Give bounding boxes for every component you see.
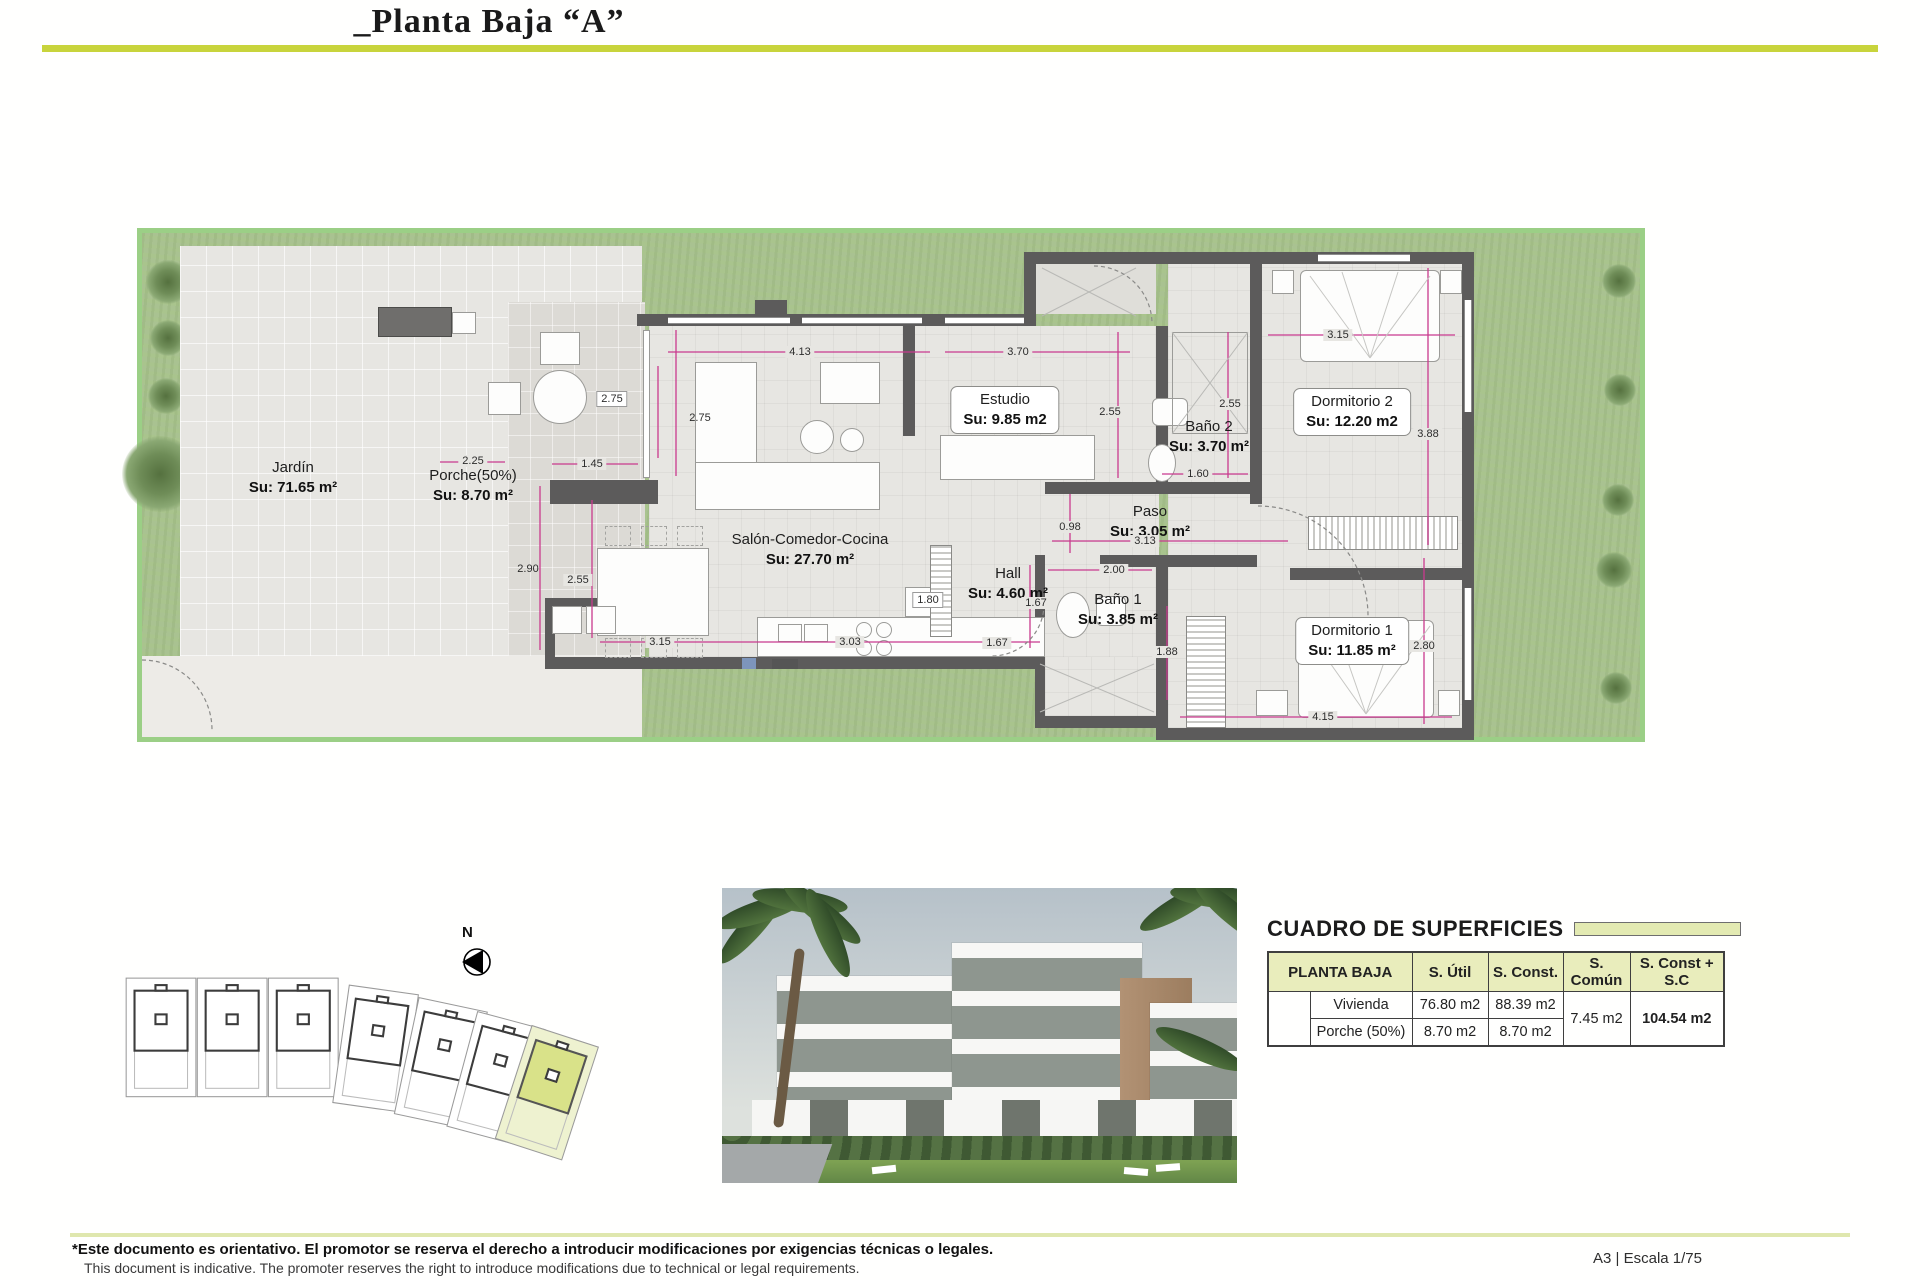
dimension: 2.00: [1099, 564, 1128, 576]
kitchen-sink: [804, 624, 828, 642]
utility-box: [772, 659, 798, 669]
room-label-porche: Porche(50%) Su: 8.70 m²: [429, 466, 517, 506]
cell-s-comun: 7.45 m2: [1563, 992, 1630, 1047]
sofa: [695, 462, 880, 510]
col-s-comun: S. Común: [1563, 952, 1630, 992]
window: [1464, 300, 1472, 412]
dimension: 3.13: [1130, 535, 1159, 547]
chair: [605, 638, 631, 658]
sheet-scale: A3 | Escala 1/75: [1593, 1250, 1702, 1267]
dimension: 1.80: [912, 592, 943, 608]
window: [802, 317, 922, 324]
disclaimer-es: *Este documento es orientativo. El promo…: [72, 1241, 993, 1258]
utility-box: [742, 658, 756, 669]
porch-table: [533, 370, 587, 424]
coffee-table: [800, 420, 834, 454]
laundry-unit: [552, 606, 582, 634]
bed: [1300, 270, 1440, 362]
page-title: _Planta Baja “A”: [289, 0, 689, 44]
footer-rule: [70, 1233, 1850, 1237]
table-header-row: PLANTA BAJA S. Útil S. Const. S. Común S…: [1268, 952, 1724, 992]
chair: [605, 526, 631, 546]
dimension: 2.90: [517, 563, 538, 575]
wall-partition: [1250, 264, 1262, 504]
dimension: 2.25: [458, 455, 487, 467]
nightstand: [1256, 690, 1288, 716]
tree-icon: [1600, 672, 1632, 704]
room-label-jardin: Jardín Su: 71.65 m²: [249, 458, 337, 498]
dimension: 3.88: [1413, 428, 1442, 440]
cell-total: 104.54 m2: [1630, 992, 1724, 1047]
dimension: 0.98: [1055, 521, 1084, 533]
wardrobe: [1308, 516, 1458, 550]
porch-chair: [540, 332, 580, 365]
room-label-bano1: Baño 1 Su: 3.85 m²: [1078, 590, 1158, 630]
surfaces-table-section: CUADRO DE SUPERFICIES PLANTA BAJA S. Úti…: [1267, 916, 1741, 1047]
wall-partition: [1035, 716, 1168, 728]
plan-sheet: _Planta Baja “A”: [0, 0, 1920, 1280]
room-label-dormitorio2: Dormitorio 2 Su: 12.20 m2: [1293, 388, 1411, 436]
dimension: 2.55: [1215, 398, 1244, 410]
tree-icon: [1596, 552, 1632, 588]
nightstand: [1438, 690, 1460, 716]
dimension: 2.75: [689, 412, 710, 424]
col-planta-baja: PLANTA BAJA: [1268, 952, 1412, 992]
kitchen-cabinet: [930, 545, 952, 637]
tree-icon: [1602, 264, 1636, 298]
col-s-const-sc: S. Const + S.C: [1630, 952, 1724, 992]
wall: [550, 480, 658, 504]
dimension: 2.55: [563, 574, 592, 586]
dimension: 3.15: [1323, 329, 1352, 341]
entry-landing: [1036, 264, 1156, 314]
nightstand: [1440, 270, 1462, 294]
window: [1318, 254, 1410, 262]
empty-cell: [1268, 992, 1310, 1047]
surfaces-table-title: CUADRO DE SUPERFICIES: [1267, 916, 1564, 942]
porch-bbq: [378, 307, 452, 337]
dimension: 4.15: [1308, 711, 1337, 723]
room-label-dormitorio1: Dormitorio 1 Su: 11.85 m²: [1295, 617, 1409, 665]
dimension: 3.03: [835, 636, 864, 648]
disclaimer-en: This document is indicative. The promote…: [84, 1260, 860, 1276]
cell-value: 88.39 m2: [1488, 992, 1563, 1019]
dimension: 4.13: [785, 346, 814, 358]
cell-value: 8.70 m2: [1412, 1019, 1488, 1047]
dimension: 3.15: [645, 636, 674, 648]
title-accent-bar: [1574, 922, 1741, 936]
kitchen-sink: [778, 624, 802, 642]
sliding-door: [643, 330, 650, 478]
col-s-const: S. Const.: [1488, 952, 1563, 992]
accent-rule: [42, 45, 1878, 52]
room-label-estudio: Estudio Su: 9.85 m2: [950, 386, 1059, 434]
chair: [677, 526, 703, 546]
dimension: 1.67: [1021, 597, 1050, 609]
wall-partition: [1290, 568, 1462, 580]
chair: [641, 526, 667, 546]
window: [1464, 588, 1472, 700]
dimension: 2.55: [1095, 406, 1124, 418]
wardrobe: [1186, 616, 1226, 728]
row-label: Porche (50%): [1310, 1019, 1412, 1047]
window: [668, 317, 790, 324]
tree-icon: [1602, 484, 1634, 516]
nightstand: [1272, 270, 1294, 294]
col-s-util: S. Útil: [1412, 952, 1488, 992]
dimension: 1.60: [1183, 468, 1212, 480]
row-label: Vivienda: [1310, 992, 1412, 1019]
site-plan: .plot{fill:#fff;stroke:#9a9a9a;stroke-wi…: [115, 952, 645, 1180]
room-label-salon: Salón-Comedor-Cocina Su: 27.70 m²: [732, 530, 889, 570]
armchair: [820, 362, 880, 404]
hob-burner: [876, 622, 892, 638]
dimension: 2.75: [596, 391, 627, 407]
porch-chair: [488, 382, 521, 415]
dimension: 1.67: [982, 637, 1011, 649]
dimension: 3.70: [1003, 346, 1032, 358]
coffee-table: [840, 428, 864, 452]
hob-burner: [876, 640, 892, 656]
wall-partition: [903, 326, 915, 436]
wall-pillar: [755, 300, 787, 314]
porch-unit: [452, 312, 476, 334]
render-path: [722, 1144, 832, 1183]
room-label-bano2: Baño 2 Su: 3.70 m²: [1169, 417, 1249, 457]
cell-value: 76.80 m2: [1412, 992, 1488, 1019]
interior-floor-bath1: [1045, 657, 1156, 716]
dimension: 2.80: [1409, 640, 1438, 652]
table-row: Vivienda 76.80 m2 88.39 m2 7.45 m2 104.5…: [1268, 992, 1724, 1019]
cell-value: 8.70 m2: [1488, 1019, 1563, 1047]
desk: [940, 435, 1095, 480]
tree-icon: [148, 378, 184, 414]
laundry-unit: [586, 606, 616, 634]
dimension: 1.88: [1152, 646, 1181, 658]
wall: [1156, 728, 1474, 740]
dimension: 1.45: [577, 458, 606, 470]
tree-icon: [1604, 374, 1636, 406]
north-label: N: [462, 924, 473, 941]
building-render-photo: [722, 888, 1237, 1183]
wall-partition: [1045, 482, 1262, 494]
chair: [677, 638, 703, 658]
window: [945, 317, 1030, 324]
surfaces-table: PLANTA BAJA S. Útil S. Const. S. Común S…: [1267, 951, 1725, 1047]
